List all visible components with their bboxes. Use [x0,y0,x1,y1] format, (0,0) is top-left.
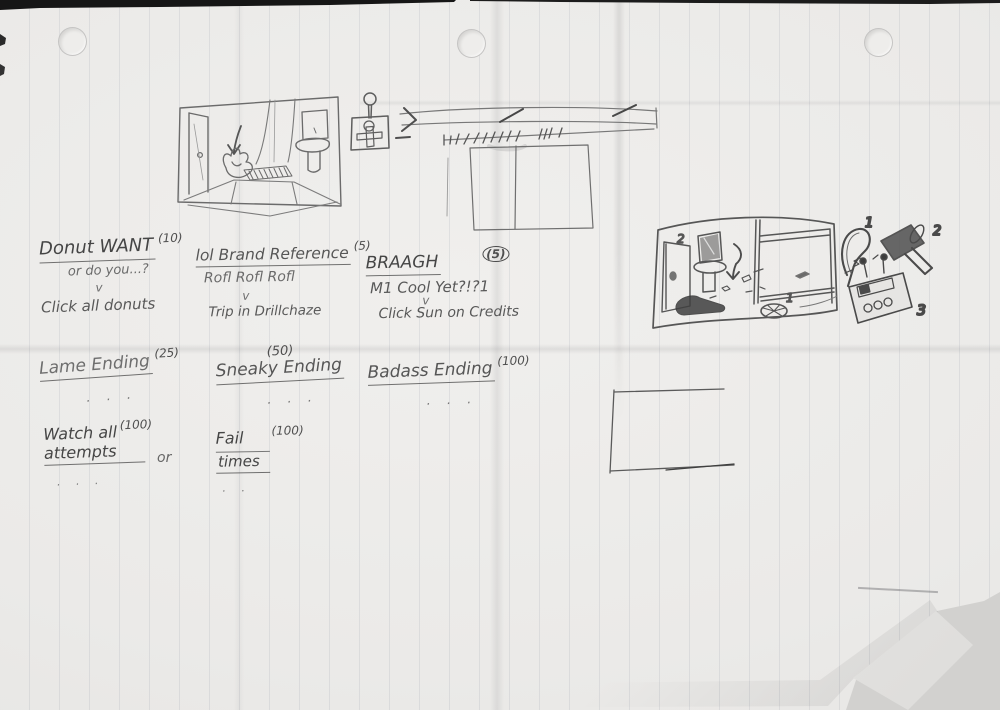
achievement-donut-want: Donut WANT(10) or do you...? v Click all… [39,231,186,317]
sketch1-floor-grate [244,166,292,180]
ending-lame: Lame Ending(25) . . . [38,345,182,410]
curtain-rod-sketch [392,98,667,238]
hole-punch-center [457,29,486,58]
paper-sheet: 2 [0,0,1000,710]
sketch2-stall [754,220,834,304]
scan-edge-left-marks [0,0,12,90]
plunger-ball [364,93,376,105]
fail-times: Fail(100) times . . [215,423,304,495]
hook-label: 1 [865,216,873,231]
achievement-braagh: BRAAGH(5) M1 Cool Yet?!?1 v Click Sun on… [365,247,519,324]
fail-line2: times [216,451,270,474]
watch-all-attempts: Watch all(100) attempts . . . [43,417,154,490]
sketch2-shoe [676,296,725,315]
ending-points: (100) [497,353,530,368]
achievement-brand-reference: lol Brand Reference(5) Rofl Rofl Rofl v … [195,238,372,321]
sketch1-door [189,113,208,194]
achievement-desc: Trip in Drillchaze [208,301,371,321]
ending-badass: Badass Ending(100) . . . [367,353,531,412]
watch-points: (100) [120,417,153,432]
mallet-icon [881,223,932,274]
achievement-points: (5) [482,246,510,262]
ending-sneaky: (50) Sneaky Ending . . . [214,341,346,411]
achievement-points: (10) [158,231,183,246]
sketch2-toilet [694,232,726,292]
fail-dots: . . [222,480,304,495]
plunger-stem [369,105,372,118]
watch-line2: attempts [44,440,145,465]
down-caret: v [422,293,429,308]
hook-icon [842,229,870,286]
mallet-label: 2 [933,224,941,239]
scanned-page: 2 [0,0,1000,710]
achievement-title: lol Brand Reference [195,244,351,268]
sketch1-mirror [302,110,328,140]
bathroom-sketch-1 [174,92,344,220]
fail-line1: Fail [215,428,243,447]
stall-rectangle [447,145,593,230]
rod-bottom-line [402,121,656,125]
or-conjunction: or [157,450,171,468]
scan-edge-top [0,0,1000,14]
hole-punch-left [58,27,87,56]
sketch2-arrow-down [727,244,741,279]
hole-punch-right [864,28,893,57]
watch-line1: Watch all [43,422,117,444]
ending-points: (25) [154,345,180,361]
achievement-title: BRAAGH [365,252,440,277]
ending-title: Badass Ending [367,358,495,386]
plunger-box-icon [344,90,396,160]
sketch1-curtain [256,99,295,164]
bathroom-sketch-2: 2 [650,208,840,338]
fail-points: (100) [271,423,304,438]
sketch2-drain [761,304,787,318]
item-icons: 1 2 3 [833,213,948,333]
achievement-subtitle: Rofl Rofl Rofl [204,268,371,288]
device-label: 3 [917,303,926,319]
achievement-subtitle: M1 Cool Yet?!?1 [370,277,519,298]
ending-title: Lame Ending [39,351,153,382]
sketch1-sink [296,138,329,172]
achievement-desc: Click Sun on Credits [378,304,519,322]
open-rectangle-sketch [606,383,746,478]
sketch1-duck-blob [223,148,252,177]
ending-title: Sneaky Ending [215,355,344,385]
achievement-title: Donut WANT [39,234,156,263]
down-caret: v [95,277,184,295]
